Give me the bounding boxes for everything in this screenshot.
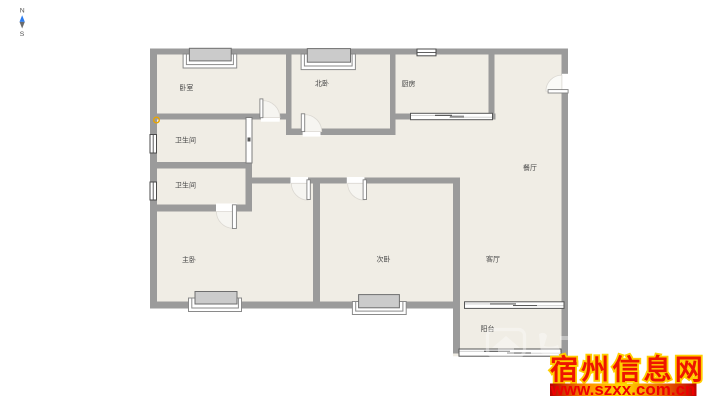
svg-text:卫生间: 卫生间 xyxy=(175,180,196,189)
svg-text:www.szxx.com.cn: www.szxx.com.cn xyxy=(550,380,696,399)
svg-text:厨房: 厨房 xyxy=(402,79,416,88)
svg-text:卧室: 卧室 xyxy=(179,83,193,92)
svg-text:餐厅: 餐厅 xyxy=(523,163,537,172)
svg-text:客厅: 客厅 xyxy=(486,255,500,264)
svg-text:北卧: 北卧 xyxy=(315,80,329,88)
svg-text:次卧: 次卧 xyxy=(377,255,391,264)
svg-text:主卧: 主卧 xyxy=(182,255,196,264)
svg-text:S: S xyxy=(20,31,25,38)
svg-text:N: N xyxy=(20,8,25,15)
svg-text:卫生间: 卫生间 xyxy=(175,135,196,144)
